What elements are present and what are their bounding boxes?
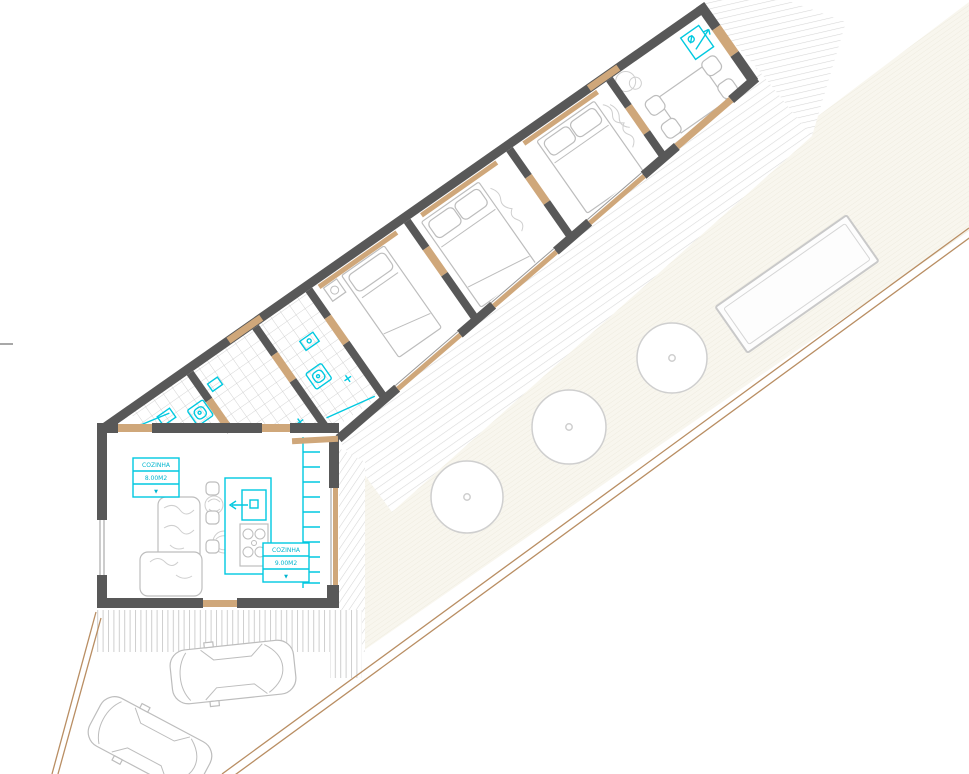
tree [431, 461, 503, 533]
door-threshold [203, 600, 237, 607]
room-name: COZINHA [272, 547, 301, 554]
site-plan-drawing: COZINHA 8.00M2 ▼ COZINHA 9.00M2 ▼ [0, 0, 969, 774]
plot-boundary-line-west [52, 612, 96, 774]
room-area: 9.00M2 [275, 560, 298, 567]
room-label-box: COZINHA 8.00M2 ▼ [133, 458, 179, 497]
level-marker: ▼ [284, 574, 288, 580]
tree [532, 390, 606, 464]
room-area: 8.00M2 [145, 475, 168, 482]
door-threshold [118, 424, 152, 432]
site-plan-page: COZINHA 8.00M2 ▼ COZINHA 9.00M2 ▼ [0, 0, 969, 774]
bar-stool [206, 540, 219, 553]
plot-boundary-line-west [58, 618, 101, 774]
tree [637, 323, 707, 393]
bar-stool [206, 511, 219, 524]
window-sill [333, 488, 338, 585]
room-label-box: COZINHA 9.00M2 ▼ [263, 543, 309, 582]
door-threshold [262, 424, 290, 432]
bar-stool [206, 482, 219, 495]
room-name: COZINHA [142, 462, 171, 469]
level-marker: ▼ [154, 489, 158, 495]
